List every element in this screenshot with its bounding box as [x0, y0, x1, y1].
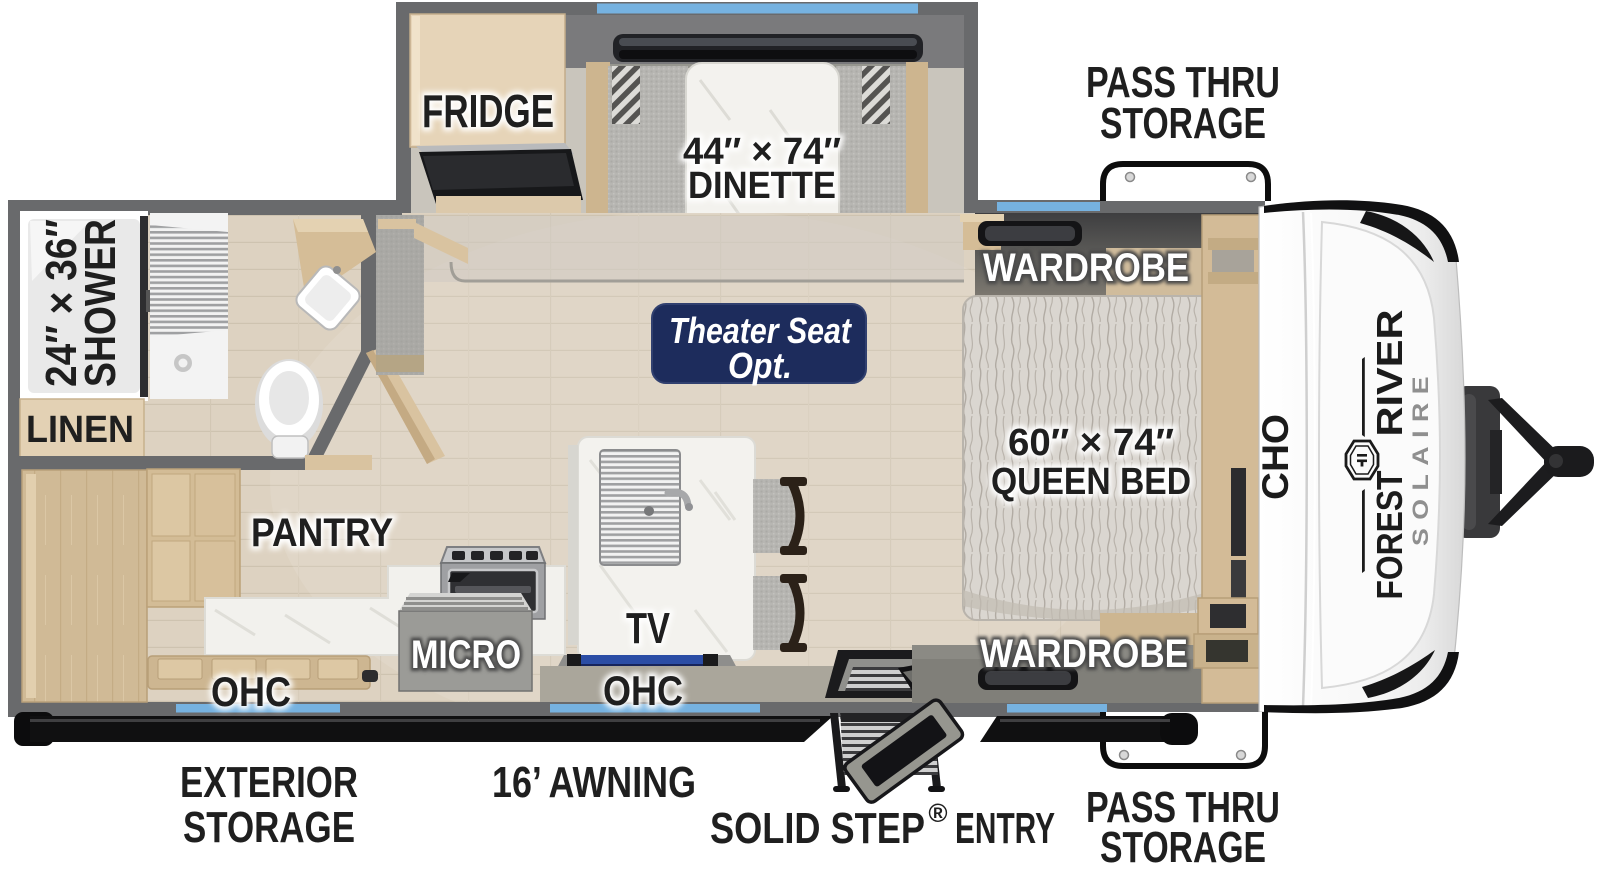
svg-text:QUEEN BED: QUEEN BED: [991, 461, 1191, 503]
svg-text:OHC: OHC: [211, 668, 291, 715]
svg-text:Opt.: Opt.: [728, 345, 792, 386]
svg-text:SHOWER: SHOWER: [76, 219, 125, 387]
svg-text:MICRO: MICRO: [411, 633, 521, 677]
svg-text:STORAGE: STORAGE: [1100, 99, 1266, 148]
svg-text:CHO: CHO: [1255, 414, 1296, 500]
svg-text:SOLID STEP: SOLID STEP: [710, 804, 925, 853]
svg-text:STORAGE: STORAGE: [1100, 823, 1266, 872]
svg-text:FOREST: FOREST: [1369, 471, 1410, 600]
svg-text:60″ × 74″: 60″ × 74″: [1008, 422, 1174, 464]
svg-text:RIVER: RIVER: [1369, 310, 1410, 437]
svg-text:®: ®: [928, 798, 947, 828]
svg-text:WARDROBE: WARDROBE: [983, 246, 1189, 290]
svg-text:DINETTE: DINETTE: [688, 165, 836, 207]
svg-text:ENTRY: ENTRY: [955, 804, 1055, 853]
svg-text:FRIDGE: FRIDGE: [422, 85, 554, 137]
svg-text:STORAGE: STORAGE: [183, 803, 355, 852]
svg-text:LINEN: LINEN: [26, 409, 134, 451]
svg-text:PANTRY: PANTRY: [251, 511, 393, 555]
svg-text:16’ AWNING: 16’ AWNING: [492, 758, 696, 807]
svg-text:TV: TV: [626, 604, 671, 653]
svg-text:OHC: OHC: [603, 667, 683, 714]
svg-text:EXTERIOR: EXTERIOR: [180, 758, 358, 807]
svg-text:SOLAIRE: SOLAIRE: [1408, 368, 1433, 546]
svg-text:WARDROBE: WARDROBE: [980, 632, 1188, 676]
